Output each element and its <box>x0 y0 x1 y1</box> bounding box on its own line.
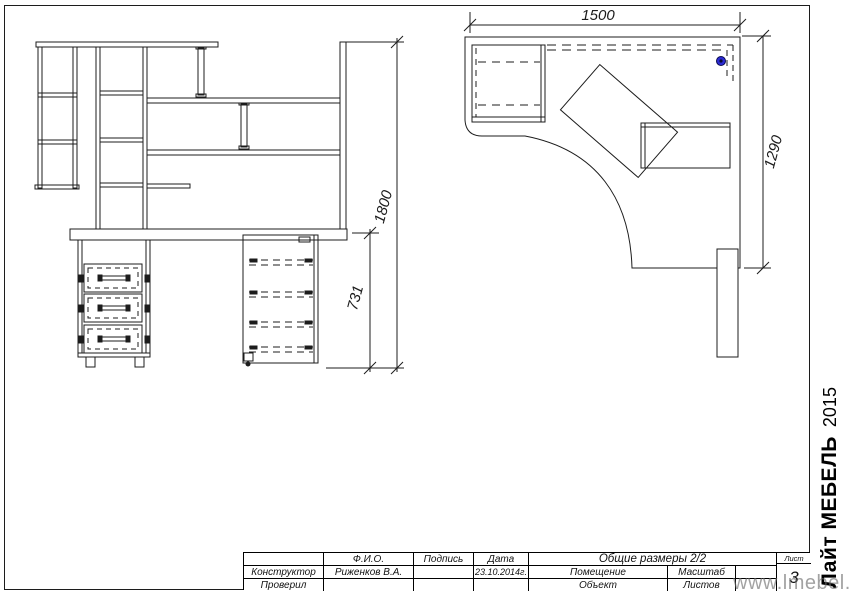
support-post <box>198 48 204 95</box>
shelf <box>38 93 77 97</box>
branding-vertical: Лайт МЕБЕЛЬ 2015 <box>813 333 847 588</box>
tb-sheets-label: Листов <box>668 579 736 591</box>
dim-desk-height: 731 <box>344 284 367 313</box>
chair-plan <box>560 65 677 178</box>
shelf <box>147 184 190 188</box>
hinge <box>244 353 253 361</box>
tb-empty <box>414 566 474 579</box>
tb-room-label: Помещение <box>529 566 668 579</box>
plan-dimensions: 1500 1290 <box>464 7 786 274</box>
hidden-shelf-dashed <box>547 45 733 82</box>
dim-width: 1500 <box>581 7 615 24</box>
tb-empty <box>324 579 414 591</box>
shelf-board <box>147 150 340 155</box>
top-board <box>36 42 218 47</box>
tb-doc-title: Общие размеры 2/2 <box>529 553 777 566</box>
dim-total-height: 1800 <box>371 188 396 225</box>
shelf-board <box>147 98 340 103</box>
drawer-front <box>79 264 149 292</box>
brand-year: 2015 <box>820 387 841 427</box>
side-panel <box>340 42 346 229</box>
tb-scale-label: Масштаб <box>668 566 736 579</box>
drawer-front <box>79 294 149 322</box>
tb-constructor-label: Конструктор <box>244 566 324 579</box>
tb-header-date: Дата <box>474 553 529 566</box>
shelf <box>100 138 143 142</box>
pedestal-bottom <box>78 353 150 357</box>
desk-outline <box>465 37 740 268</box>
shelf <box>100 183 143 187</box>
panel <box>38 47 42 188</box>
tb-empty <box>474 579 529 591</box>
watermark: www.lmebel.by <box>733 572 850 595</box>
dim-depth: 1290 <box>761 133 786 170</box>
front-elevation-view: 1800 731 <box>35 36 404 374</box>
drawing-sheet: 1800 731 <box>0 0 850 600</box>
side-panel-plan <box>717 249 738 357</box>
panel <box>96 47 100 229</box>
plan-view: 1500 1290 <box>464 7 786 357</box>
brand-name: Лайт МЕБЕЛЬ <box>818 436 842 588</box>
drawer-front <box>79 325 149 353</box>
under-desk-shelf-plan <box>641 123 730 168</box>
shelf <box>38 140 77 144</box>
tb-header-fio: Ф.И.О. <box>324 553 414 566</box>
panel <box>73 47 77 188</box>
panel <box>143 47 147 229</box>
tb-object-label: Объект <box>529 579 668 591</box>
title-block: Ф.И.О. Подпись Дата Общие размеры 2/2 Ли… <box>243 552 810 590</box>
elevation-dimensions: 1800 731 <box>326 36 404 374</box>
tb-header-signature: Подпись <box>414 553 474 566</box>
support-post <box>241 104 247 147</box>
shelf <box>100 91 143 95</box>
door-cabinet <box>243 235 318 366</box>
tb-checked-label: Проверил <box>244 579 324 591</box>
tb-constructor-name: Риженков В.А. <box>324 566 414 579</box>
tb-empty <box>414 579 474 591</box>
overhead-cabinet-plan <box>472 45 545 122</box>
drawing-canvas: 1800 731 <box>0 0 850 600</box>
foot <box>135 357 144 367</box>
tb-empty <box>244 553 324 566</box>
tb-sheet-label: Лист <box>777 553 811 564</box>
tb-date-value: 23.10.2014г. <box>474 566 529 579</box>
blue-marker-icon <box>717 57 726 66</box>
foot <box>86 357 95 367</box>
